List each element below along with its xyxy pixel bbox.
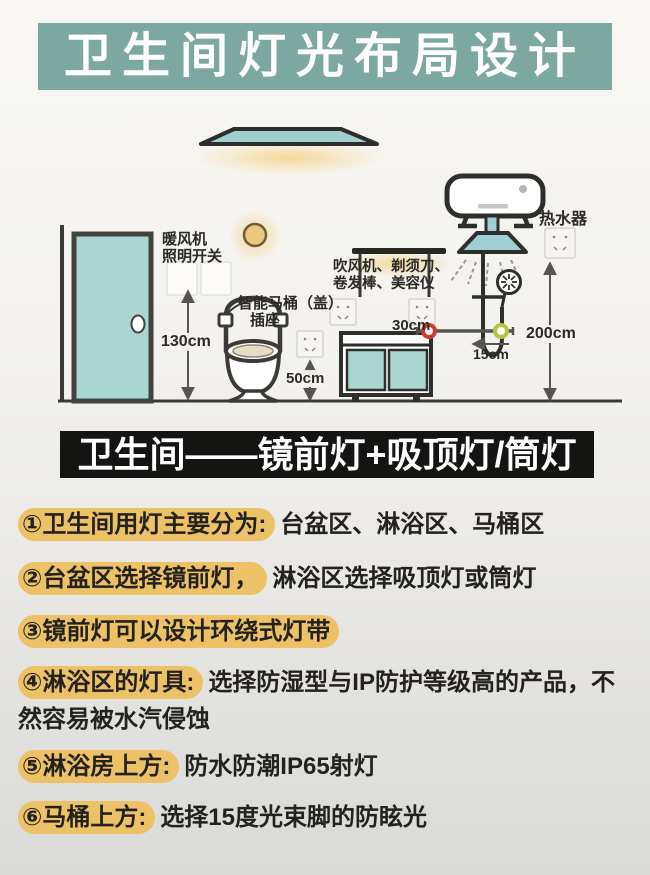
appliance-label-line2: 卷发棒、美容仪	[333, 276, 449, 293]
list-item-5-highlight: ⑤淋浴房上方:	[18, 750, 179, 783]
list-item-4: ④淋浴区的灯具:选择防湿型与IP防护等级高的产品，不然容易被水汽侵蚀	[18, 664, 636, 738]
list-item-3: ③镜前灯可以设计环绕式灯带	[18, 613, 636, 650]
toilet-socket-label: 智能马桶（盖） 插座	[238, 295, 343, 329]
ceiling-panel-glow	[194, 141, 384, 175]
list-item-5: ⑤淋浴房上方:防水防潮IP65射灯	[18, 748, 636, 785]
list-item-2: ②台盆区选择镜前灯，淋浴区选择吸顶灯或筒灯	[18, 560, 636, 597]
heater-switch-label-line1: 暖风机	[162, 231, 222, 248]
page-title: 卫生间灯光布局设计	[38, 23, 612, 90]
ceiling-downlight	[244, 224, 266, 246]
shower-faucet	[417, 325, 513, 337]
list-item-2-rest: 淋浴区选择吸顶灯或筒灯	[272, 565, 536, 592]
list-item-1: ①卫生间用灯主要分为:台盆区、淋浴区、马桶区	[18, 506, 636, 543]
appliance-label-line1: 吹风机、剃须刀、	[333, 259, 449, 276]
toilet-socket-label-line1: 智能马桶（盖）	[238, 295, 343, 312]
dim-label-15cm: 15cm	[473, 346, 509, 362]
list-item-4-highlight: ④淋浴区的灯具:	[18, 666, 203, 699]
heater-switch-label-line2: 照明开关	[162, 248, 222, 265]
mirror-light	[352, 248, 446, 254]
dim-label-200cm: 200cm	[524, 325, 578, 343]
list-item-2-highlight: ②台盆区选择镜前灯，	[18, 562, 267, 595]
heater-light-switches	[167, 262, 231, 295]
list-item-1-rest: 台盆区、淋浴区、马桶区	[280, 511, 544, 538]
cold-water-knob	[495, 325, 507, 337]
dim-label-30cm: 30cm	[392, 317, 430, 334]
toilet-socket	[297, 331, 323, 357]
handheld-shower	[498, 271, 521, 308]
dim-label-50cm: 50cm	[284, 370, 326, 387]
entry-door	[74, 234, 151, 401]
dim-label-130cm: 130cm	[159, 333, 213, 351]
list-item-6-rest: 选择15度光束脚的防眩光	[160, 804, 427, 831]
toilet-socket-label-line2: 插座	[250, 312, 343, 329]
list-item-3-highlight: ③镜前灯可以设计环绕式灯带	[18, 615, 339, 648]
vanity-cabinet	[341, 333, 431, 402]
infographic-page: 卫生间灯光布局设计	[0, 0, 650, 875]
list-item-1-highlight: ①卫生间用灯主要分为:	[18, 508, 275, 541]
appliance-label: 吹风机、剃须刀、 卷发棒、美容仪	[333, 259, 449, 293]
ceiling-light-panel	[201, 129, 377, 144]
water-heater-socket	[545, 228, 575, 258]
list-item-5-rest: 防水防潮IP65射灯	[184, 753, 377, 780]
water-heater-label: 热水器	[539, 205, 587, 229]
subtitle-banner: 卫生间——镜前灯+吸顶灯/筒灯	[60, 431, 594, 478]
heater-switch-label: 暖风机 照明开关	[162, 231, 222, 265]
list-item-6-highlight: ⑥马桶上方:	[18, 801, 155, 834]
door-knob	[132, 316, 145, 333]
shower-hose	[483, 252, 502, 355]
list-item-6: ⑥马桶上方:选择15度光束脚的防眩光	[18, 799, 636, 836]
